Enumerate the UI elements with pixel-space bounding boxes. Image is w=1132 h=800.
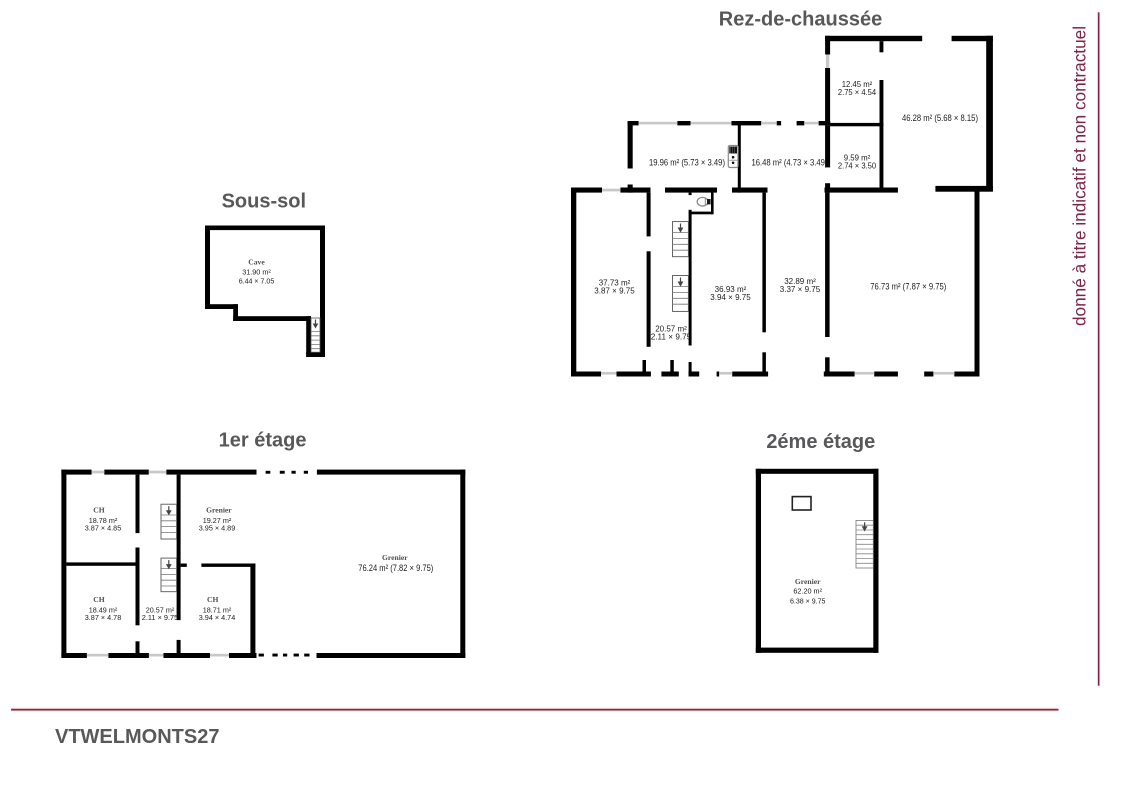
svg-text:2.11 × 9.75: 2.11 × 9.75 (651, 332, 692, 341)
svg-text:donné à titre indicatif et non: donné à titre indicatif et non contractu… (1069, 26, 1089, 326)
svg-text:1er étage: 1er étage (219, 429, 307, 451)
svg-text:76.73 m² (7.87 × 9.75): 76.73 m² (7.87 × 9.75) (870, 281, 946, 291)
svg-text:CH: CH (93, 505, 104, 514)
svg-text:62.20 m²: 62.20 m² (793, 587, 822, 596)
svg-text:3.94 × 4.74: 3.94 × 4.74 (199, 613, 236, 622)
svg-text:16.48 m² (4.73 × 3.49): 16.48 m² (4.73 × 3.49) (752, 157, 828, 167)
svg-text:6.44 × 7.05: 6.44 × 7.05 (239, 276, 275, 285)
svg-text:CH: CH (207, 595, 218, 604)
svg-text:76.24 m² (7.82 × 9.75): 76.24 m² (7.82 × 9.75) (358, 563, 433, 573)
svg-text:2.74 × 3.50: 2.74 × 3.50 (838, 161, 877, 170)
svg-text:Grenier: Grenier (382, 553, 408, 562)
svg-text:6.38 × 9.75: 6.38 × 9.75 (790, 596, 826, 605)
svg-text:VTWELMONTS27: VTWELMONTS27 (55, 726, 219, 748)
svg-text:Grenier: Grenier (206, 505, 232, 514)
svg-text:3.95 × 4.89: 3.95 × 4.89 (199, 523, 236, 532)
svg-text:3.87 × 4.85: 3.87 × 4.85 (85, 523, 122, 532)
svg-text:Rez-de-chaussée: Rez-de-chaussée (719, 8, 882, 30)
svg-text:2.11 × 9.75: 2.11 × 9.75 (142, 613, 179, 622)
svg-text:3.94 × 9.75: 3.94 × 9.75 (710, 293, 751, 302)
svg-text:3.87 × 4.78: 3.87 × 4.78 (85, 613, 122, 622)
svg-text:3.37 × 9.75: 3.37 × 9.75 (780, 285, 821, 294)
svg-text:19.96 m² (5.73 × 3.49): 19.96 m² (5.73 × 3.49) (649, 157, 725, 167)
svg-text:Cave: Cave (248, 257, 265, 266)
svg-text:2.75 × 4.54: 2.75 × 4.54 (838, 88, 877, 97)
svg-text:Grenier: Grenier (795, 577, 821, 586)
svg-text:2éme étage: 2éme étage (766, 431, 875, 453)
svg-text:3.87 × 9.75: 3.87 × 9.75 (594, 286, 635, 295)
svg-text:Sous-sol: Sous-sol (222, 191, 306, 213)
svg-text:46.28 m² (5.68 × 8.15): 46.28 m² (5.68 × 8.15) (902, 113, 978, 123)
svg-text:CH: CH (93, 595, 104, 604)
